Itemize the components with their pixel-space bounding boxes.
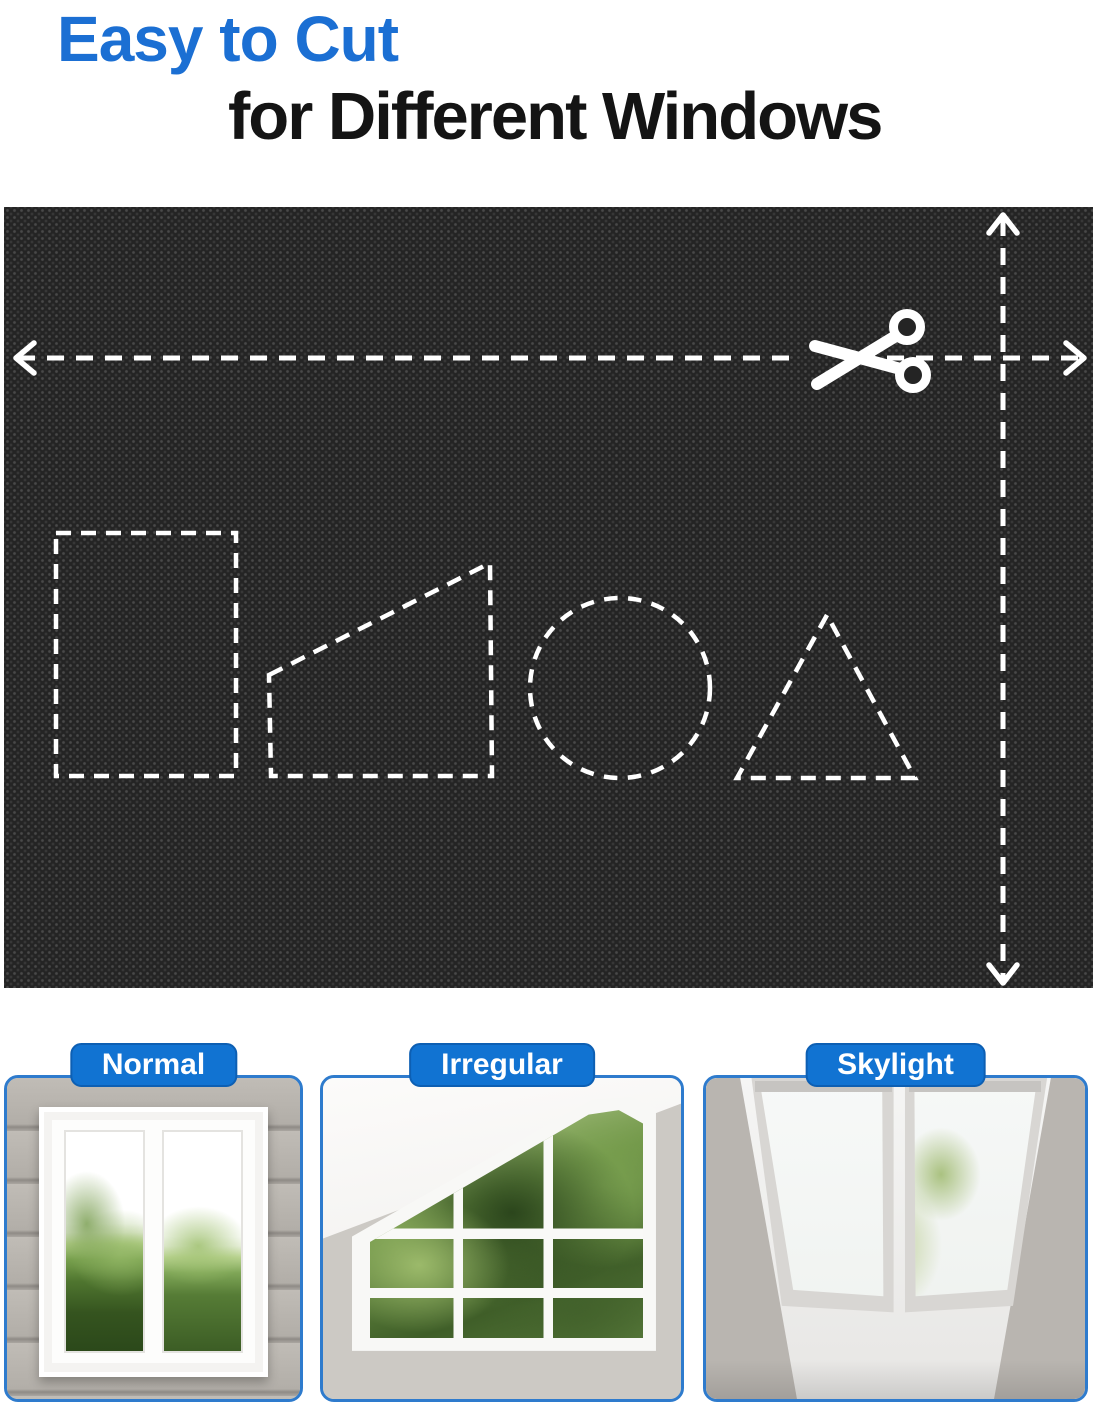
scissors-icon	[815, 314, 927, 389]
irregular-window-photo	[323, 1078, 681, 1399]
triangle-cutout	[737, 615, 915, 778]
rectangle-cutout	[56, 533, 236, 776]
cut-guides-graphic	[4, 207, 1093, 988]
normal-badge: Normal	[70, 1043, 237, 1087]
irregular-badge: Irregular	[409, 1043, 595, 1087]
irregular-badge-label: Irregular	[441, 1048, 563, 1081]
normal-window-photo	[7, 1078, 300, 1399]
window-pane-right	[162, 1130, 243, 1353]
example-panel-normal: Normal	[4, 1075, 303, 1402]
headline-main: for Different Windows	[228, 78, 881, 155]
skylight-badge: Skylight	[805, 1043, 986, 1087]
example-panel-irregular: Irregular	[320, 1075, 684, 1402]
normal-window-frame	[39, 1107, 268, 1377]
example-panel-skylight: Skylight	[703, 1075, 1088, 1402]
shaft-shadow	[706, 1360, 1085, 1399]
skylight-badge-label: Skylight	[837, 1048, 954, 1081]
normal-window-sash	[52, 1120, 255, 1363]
circle-cutout	[530, 598, 710, 778]
vertical-cut-line	[989, 215, 1017, 983]
normal-badge-label: Normal	[102, 1048, 205, 1081]
trapezoid-cutout	[269, 563, 492, 776]
window-pane-left	[64, 1130, 145, 1353]
product-infographic: Easy to Cut for Different Windows	[0, 0, 1093, 1407]
headline-accent: Easy to Cut	[57, 2, 398, 76]
fabric-swatch	[4, 207, 1093, 988]
skylight-window-photo	[706, 1078, 1085, 1399]
